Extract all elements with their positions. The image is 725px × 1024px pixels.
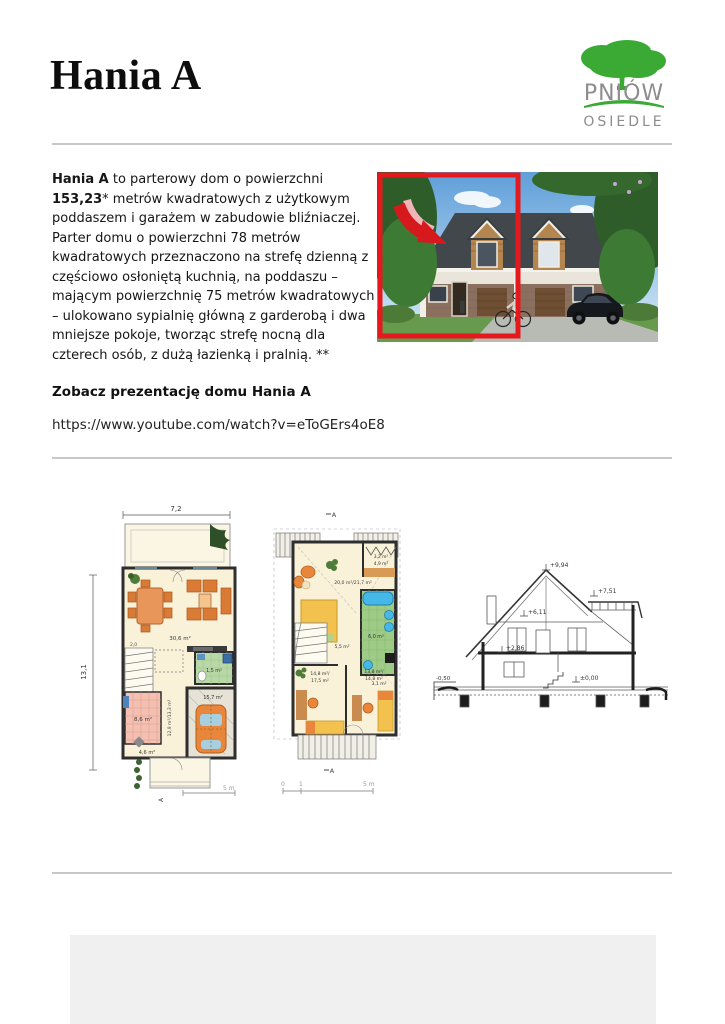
ground-bathroom (195, 652, 233, 684)
logo-tree-icon: PNIÓW OSIEDLE (572, 38, 676, 134)
house-cross-section: +9,94 +7,51 +6,11 +2,86 ±0,00 -0,50 (428, 550, 674, 726)
ground-stairs-label: 2,0 (130, 642, 137, 648)
description-paragraph: Hania A to parterowy dom o powierzchni 1… (52, 170, 382, 365)
divider-middle (52, 457, 672, 459)
ground-living-label: 30,6 m² (169, 635, 191, 642)
ground-wc-label: 1,5 m² (206, 668, 222, 674)
ground-garage-label: 15,7 m² (203, 695, 223, 701)
description-area: 153,23 (52, 192, 102, 207)
upper-scale-0: 0 (281, 781, 285, 788)
upper-wardrobe-a-label: 3,2 m² (374, 554, 389, 560)
divider-top (52, 143, 672, 145)
upper-room-left-b-label: 17,5 m² (311, 678, 329, 684)
upper-section-marker-bottom: A (330, 767, 335, 775)
ground-terrace (125, 524, 230, 568)
upper-bath-label: 6,0 m² (368, 634, 384, 640)
video-heading: Zobacz prezentację domu Hania A (52, 384, 311, 400)
upper-scale-1: 1 (299, 781, 303, 788)
upper-room-right-b-label: 14,8 m² (365, 676, 383, 682)
section-floor-label: +2,86 (506, 645, 525, 652)
upper-scalebar (283, 788, 373, 794)
section-ridge-label: +9,94 (550, 562, 569, 569)
ground-porch (134, 758, 210, 789)
divider-bottom (52, 872, 672, 874)
ground-scale-label: 5 m (223, 785, 235, 792)
ground-section-marker: A (158, 797, 165, 802)
upper-wardrobe-b-label: 4,9 m² (374, 561, 389, 567)
upper-bedroom-label: 20,0 m²/21,7 m² (334, 580, 372, 586)
ground-corridor-label: 12,9 m²/13,3 m² (167, 699, 173, 736)
ground-dim-height: 13,1 (80, 664, 88, 680)
logo-brand-text: PNIÓW (584, 80, 664, 106)
upper-bathroom (361, 590, 395, 675)
photo-person (460, 297, 465, 313)
upper-hall-label: 5,5 m² (334, 644, 349, 650)
footer-box (70, 935, 656, 1024)
video-url-link[interactable]: https://www.youtube.com/watch?v=eToGErs4… (52, 417, 385, 433)
house-photo (377, 172, 658, 342)
section-zero-label: ±0,00 (580, 675, 599, 682)
description-text-1: to parterowy dom o powierzchni (109, 172, 323, 187)
upper-room-left-a-label: 14,8 m²/ (310, 671, 330, 677)
description-text-2: * metrów kwadratowych z użytkowym poddas… (52, 192, 375, 363)
upper-scale-end: 5 m (363, 781, 375, 788)
section-dormer-label: +7,51 (598, 588, 617, 595)
upper-section-marker-top: A (332, 511, 337, 519)
pniow-osiedle-logo: PNIÓW OSIEDLE (572, 38, 676, 134)
floorplan-upper: A 20,0 m²/21,7 m² 3,2 m² 4,9 m² 6 (268, 505, 406, 804)
ground-hall-label: 4,6 m² (139, 750, 155, 756)
ground-dim-width: 7,2 (170, 505, 181, 513)
ground-kitchen-label: 8,6 m² (134, 716, 152, 723)
upper-room-right-a-label: 13,8 m²/ (364, 669, 384, 675)
floorplan-ground: 7,2 13,1 30,6 m² 1, (75, 500, 255, 809)
section-terrain-label: -0,50 (436, 676, 451, 682)
section-structure (434, 570, 668, 707)
upper-stairs (295, 623, 327, 663)
section-attic-label: +6,11 (528, 609, 547, 616)
page: { "header": { "title": "Hania A", "logo"… (0, 0, 725, 1024)
logo-sub-text: OSIEDLE (583, 114, 664, 130)
description-lead: Hania A (52, 172, 109, 187)
upper-balcony-bottom (298, 735, 376, 759)
page-title: Hania A (50, 52, 202, 100)
